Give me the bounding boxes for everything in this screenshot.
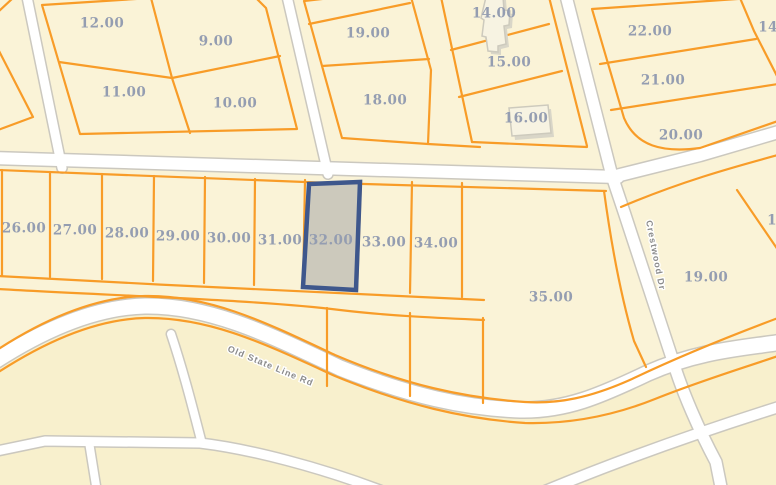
- parcel-label-11: 11.00: [102, 85, 146, 101]
- parcel-label-10: 10.00: [213, 96, 257, 112]
- parcel-label-26: 26.00: [2, 221, 46, 237]
- parcel-map-canvas[interactable]: 12.00 9.00 11.00 10.00 19.00 18.00 14.00…: [0, 0, 776, 485]
- map-viewport: 12.00 9.00 11.00 10.00 19.00 18.00 14.00…: [0, 0, 776, 485]
- parcel-label-29: 29.00: [156, 229, 200, 245]
- parcel-label-34: 34.00: [414, 236, 458, 252]
- parcel-label-16: 16.00: [504, 111, 548, 127]
- parcel-label-21: 21.00: [641, 73, 685, 89]
- parcel-label-20: 20.00: [659, 128, 703, 144]
- parcel-label-14-partial: 14: [758, 20, 776, 36]
- parcel-label-32-selected[interactable]: 32.00: [309, 233, 353, 249]
- parcel-label-1-partial: 1: [767, 213, 776, 229]
- parcel-label-18: 18.00: [363, 93, 407, 109]
- parcel-label-14: 14.00: [472, 6, 516, 22]
- parcel-label-12: 12.00: [80, 16, 124, 32]
- parcel-label-33: 33.00: [362, 235, 406, 251]
- parcel-label-19-north: 19.00: [346, 26, 390, 42]
- parcel-label-31: 31.00: [258, 233, 302, 249]
- parcel-label-27: 27.00: [53, 223, 97, 239]
- parcel-label-19-east: 19.00: [684, 270, 728, 286]
- parcel-label-35: 35.00: [529, 290, 573, 306]
- parcel-label-22: 22.00: [628, 24, 672, 40]
- parcel-label-28: 28.00: [105, 226, 149, 242]
- parcel-label-30: 30.00: [207, 231, 251, 247]
- parcel-label-15: 15.00: [487, 55, 531, 71]
- parcel-label-9: 9.00: [199, 34, 233, 50]
